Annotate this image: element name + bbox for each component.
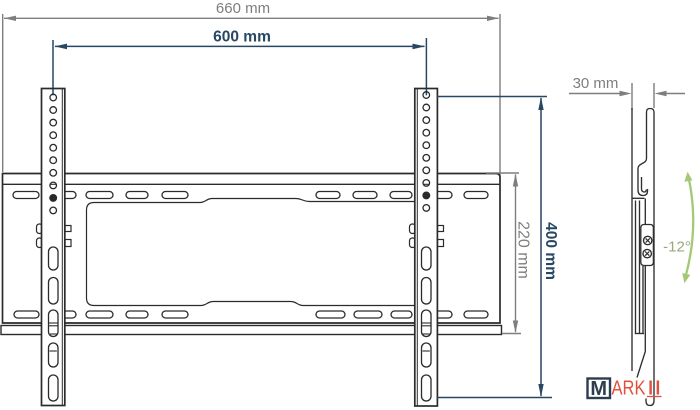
svg-text:600 mm: 600 mm bbox=[213, 29, 271, 46]
svg-text:660 mm: 660 mm bbox=[216, 0, 270, 17]
svg-text:220 mm: 220 mm bbox=[514, 221, 531, 279]
svg-text:M: M bbox=[590, 378, 607, 400]
svg-text:ARK: ARK bbox=[612, 378, 647, 400]
svg-text:30 mm: 30 mm bbox=[573, 75, 619, 92]
svg-text:400 mm: 400 mm bbox=[542, 222, 559, 280]
svg-text:-12°: -12° bbox=[663, 239, 691, 256]
